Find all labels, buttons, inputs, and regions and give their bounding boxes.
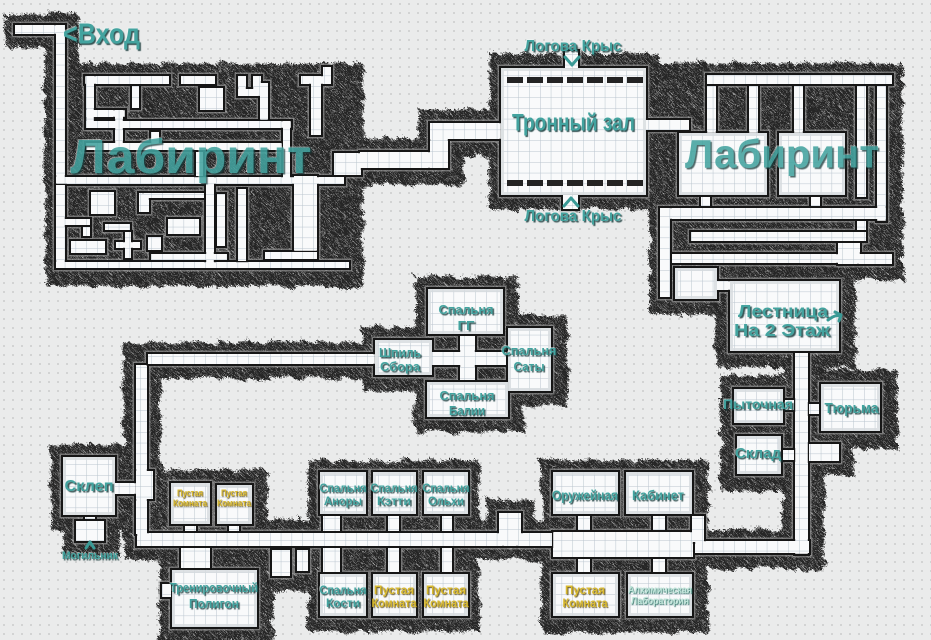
- svg-text:Ольхи: Ольхи: [428, 496, 464, 508]
- svg-text:Пустая: Пустая: [426, 585, 466, 597]
- svg-text:Лаборатория: Лаборатория: [631, 595, 689, 607]
- svg-text:Могильник: Могильник: [62, 550, 118, 562]
- svg-text:Пустая: Пустая: [221, 488, 247, 498]
- svg-text:Спальня: Спальня: [320, 483, 367, 495]
- svg-text:Шпиль: Шпиль: [379, 345, 421, 360]
- svg-text:Пустая: Пустая: [565, 585, 605, 597]
- svg-text:<Вход: <Вход: [63, 19, 140, 51]
- svg-text:Полигон: Полигон: [189, 597, 239, 611]
- svg-text:Тренировочный: Тренировочный: [170, 581, 258, 595]
- svg-text:Комната: Комната: [217, 498, 252, 508]
- svg-text:Спальня: Спальня: [439, 302, 494, 317]
- svg-text:На 2 Этаж: На 2 Этаж: [734, 320, 831, 340]
- svg-text:Комната: Комната: [173, 498, 208, 508]
- svg-text:ГГ: ГГ: [458, 318, 476, 333]
- svg-text:Спальня: Спальня: [320, 585, 367, 597]
- svg-text:Пустая: Пустая: [177, 488, 203, 498]
- svg-text:Склад: Склад: [735, 446, 781, 462]
- svg-text:Сбора: Сбора: [380, 359, 421, 374]
- svg-text:Комната: Комната: [372, 598, 418, 610]
- svg-text:Алхимическая: Алхимическая: [628, 585, 692, 596]
- svg-text:Оружейная: Оружейная: [552, 487, 618, 503]
- svg-text:Балии: Балии: [449, 403, 485, 418]
- svg-text:Кэтти: Кэтти: [377, 496, 411, 508]
- svg-text:Логова Крыс: Логова Крыс: [525, 208, 622, 225]
- svg-text:Склеп: Склеп: [65, 478, 114, 495]
- svg-text:Комната: Комната: [424, 598, 470, 610]
- svg-text:Спальня: Спальня: [371, 483, 418, 495]
- svg-text:Аноры: Аноры: [324, 496, 362, 508]
- svg-text:Комната: Комната: [563, 598, 609, 610]
- svg-text:Лабиринт: Лабиринт: [685, 133, 879, 177]
- svg-text:Кабинет: Кабинет: [632, 487, 684, 503]
- svg-text:Тюрьма: Тюрьма: [825, 401, 880, 417]
- svg-text:Тронный зал: Тронный зал: [512, 110, 635, 137]
- svg-text:Лабиринт: Лабиринт: [71, 131, 312, 184]
- svg-text:Спальня: Спальня: [423, 483, 470, 495]
- svg-text:Кости: Кости: [326, 598, 360, 610]
- svg-text:Лестница: Лестница: [738, 301, 828, 321]
- svg-text:Пустая: Пустая: [374, 585, 414, 597]
- svg-text:Логова Крыс: Логова Крыс: [525, 38, 622, 55]
- svg-text:Спальня: Спальня: [440, 388, 495, 403]
- svg-text:Спальня: Спальня: [502, 343, 557, 358]
- svg-text:Пыточная: Пыточная: [723, 397, 793, 412]
- svg-text:Саты: Саты: [514, 359, 545, 374]
